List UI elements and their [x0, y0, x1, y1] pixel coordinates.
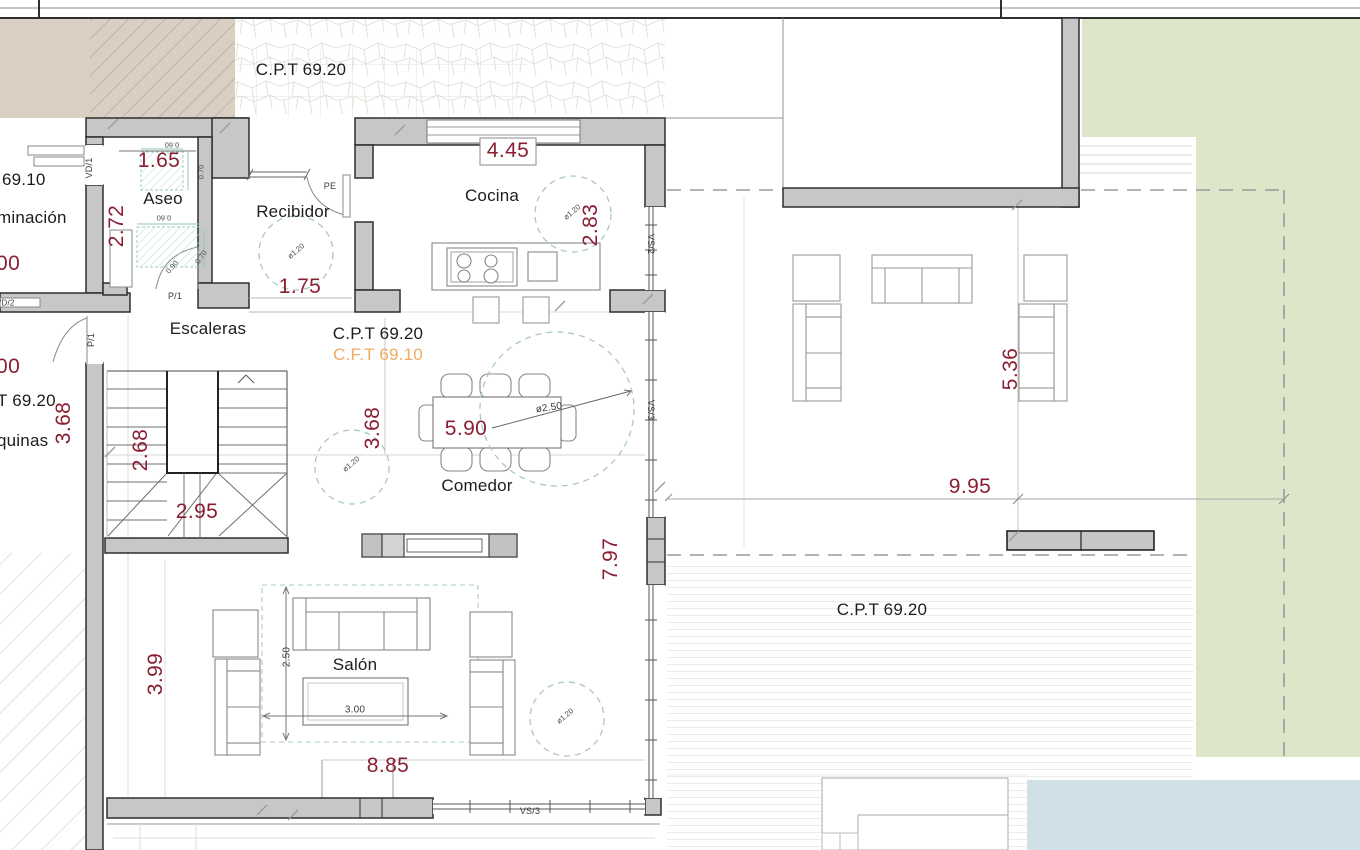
vd2-door-leaf — [0, 298, 40, 307]
side-table — [213, 610, 258, 657]
sink — [528, 252, 557, 281]
shower-tray-2 — [137, 227, 200, 267]
plan-drawing — [0, 0, 1360, 850]
shower-tray — [141, 152, 183, 190]
pool-structure — [822, 778, 1008, 850]
chair — [480, 447, 511, 471]
outdoor-table — [793, 255, 840, 301]
outdoor-table — [1024, 255, 1067, 301]
chair — [441, 374, 472, 398]
site-boundary — [0, 0, 1360, 19]
outdoor-armchair-left — [793, 304, 841, 401]
dining-set — [419, 374, 576, 471]
tv-sideboard — [362, 534, 517, 557]
planter-bench — [1007, 531, 1154, 550]
armchair-right — [470, 660, 515, 755]
burner — [457, 254, 471, 268]
neighbor-hatch — [0, 553, 86, 850]
burner — [485, 255, 497, 267]
outdoor-armchair-right — [1019, 304, 1067, 401]
dining-table — [433, 397, 561, 448]
earth-hatch — [90, 18, 235, 118]
chair — [441, 447, 472, 471]
aseo-fixtures — [110, 149, 204, 287]
coffee-table-inner — [308, 683, 403, 720]
burner — [458, 270, 470, 282]
sofa — [293, 598, 430, 650]
dim-box-445 — [480, 138, 536, 165]
kitchen-island — [432, 243, 600, 323]
burner — [484, 269, 498, 283]
wc-fixture — [110, 230, 132, 287]
armchair-left — [215, 659, 260, 755]
outdoor-sofa — [872, 255, 972, 303]
site-grid — [237, 47, 527, 118]
stool — [523, 297, 549, 323]
side-table — [470, 612, 512, 657]
terrace-furniture — [793, 255, 1154, 550]
lawn-upper — [1082, 18, 1360, 137]
lawn-right — [1196, 137, 1360, 757]
chair — [519, 374, 550, 398]
stool — [473, 297, 499, 323]
garden-steps — [1078, 137, 1192, 182]
salon-furniture — [213, 585, 515, 755]
chair — [519, 447, 550, 471]
pool — [1027, 780, 1360, 850]
floor-plan: C.P.T 69.20 Aseo Recibidor Cocina Escale… — [0, 0, 1360, 850]
chair — [480, 374, 511, 398]
